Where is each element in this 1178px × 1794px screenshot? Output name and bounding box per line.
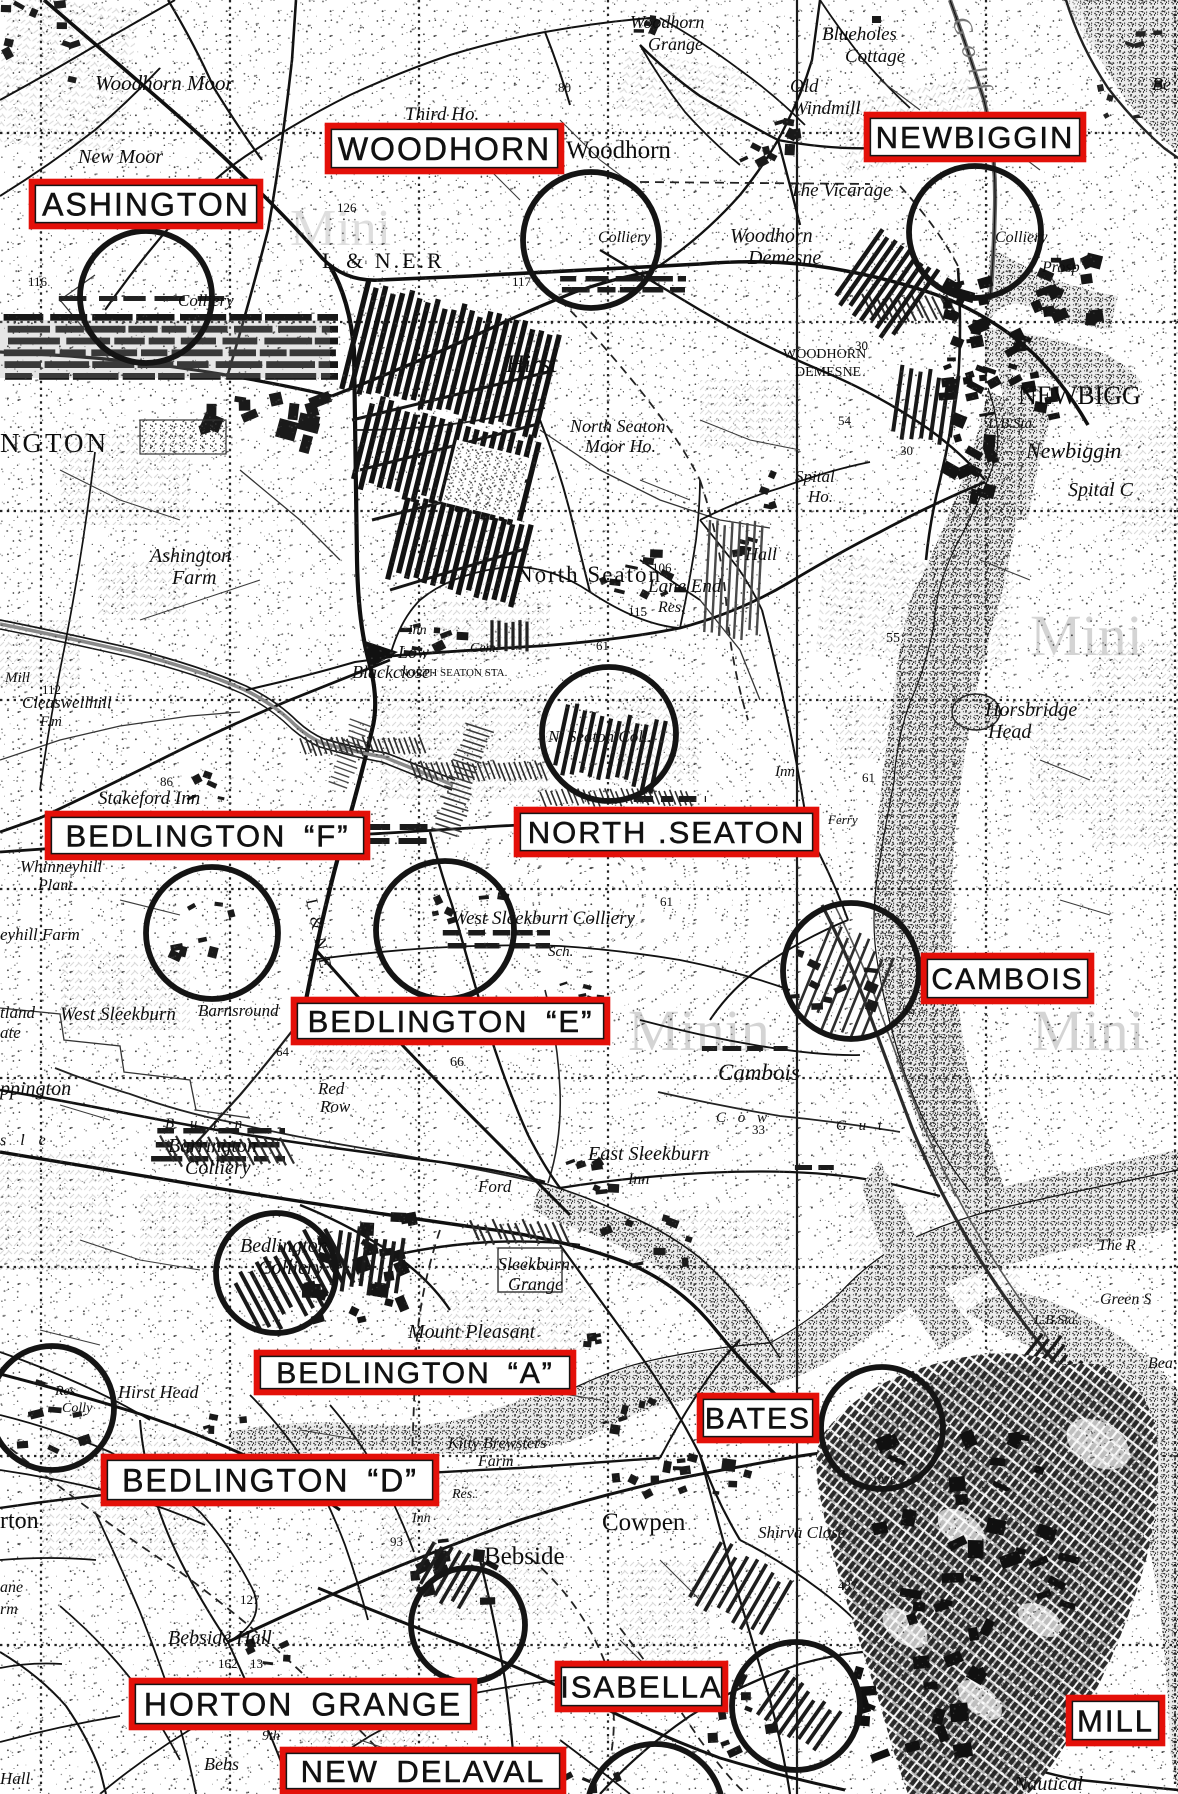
svg-text:HORTON GRANGE: HORTON GRANGE — [144, 1686, 462, 1722]
svg-text:Bebs: Bebs — [204, 1754, 239, 1774]
svg-text:Res.: Res. — [54, 1384, 79, 1399]
svg-text:Ferry: Ferry — [827, 812, 858, 827]
svg-text:Ashington: Ashington — [148, 545, 231, 567]
svg-text:Head: Head — [987, 721, 1032, 743]
svg-text:55: 55 — [886, 631, 900, 646]
svg-text:30: 30 — [855, 338, 868, 353]
svg-text:Colly: Colly — [62, 1401, 93, 1416]
svg-text:Cleaswellhill: Cleaswellhill — [22, 693, 112, 712]
svg-text:Cambois: Cambois — [718, 1060, 800, 1085]
svg-text:Bedlington: Bedlington — [240, 1235, 328, 1257]
svg-text:Old: Old — [790, 76, 819, 97]
svg-text:North Seaton: North Seaton — [516, 562, 662, 587]
svg-text:BEDLINGTON “A”: BEDLINGTON “A” — [276, 1357, 553, 1390]
svg-text:NEW DELAVAL: NEW DELAVAL — [301, 1754, 546, 1789]
svg-text:13: 13 — [250, 1656, 263, 1671]
svg-text:The R: The R — [1098, 1237, 1136, 1254]
svg-text:Woodhorn: Woodhorn — [630, 12, 704, 32]
svg-text:Bebside Hall: Bebside Hall — [168, 1627, 272, 1649]
svg-text:Cem.: Cem. — [470, 641, 499, 656]
svg-text:ane: ane — [0, 1579, 23, 1596]
svg-text:Woodhorn: Woodhorn — [566, 137, 671, 164]
svg-text:BEDLINGTON “F”: BEDLINGTON “F” — [65, 819, 349, 854]
svg-text:61: 61 — [862, 770, 875, 785]
svg-text:Sleekburn: Sleekburn — [498, 1254, 570, 1274]
svg-text:61: 61 — [660, 894, 673, 909]
svg-text:93: 93 — [390, 1534, 403, 1549]
svg-text:tland: tland — [0, 1003, 35, 1022]
svg-text:Cottage: Cottage — [845, 46, 905, 67]
svg-text:Farm: Farm — [477, 1453, 514, 1470]
svg-text:Windmill: Windmill — [792, 98, 861, 119]
svg-text:BEDLINGTON “E”: BEDLINGTON “E” — [308, 1004, 594, 1039]
svg-text:F.m: F.m — [39, 714, 62, 730]
svg-text:Mill: Mill — [4, 670, 30, 686]
svg-text:Grange: Grange — [508, 1274, 563, 1294]
svg-text:33: 33 — [752, 1122, 765, 1137]
svg-text:rm: rm — [0, 1601, 18, 1618]
svg-text:64: 64 — [276, 1044, 290, 1059]
svg-text:NEWBIGGIN: NEWBIGGIN — [876, 120, 1075, 155]
svg-text:Low: Low — [397, 642, 429, 662]
svg-text:Colliery: Colliery — [185, 1157, 251, 1179]
svg-text:Mount Pleasant: Mount Pleasant — [407, 1321, 536, 1343]
svg-text:Prosp: Prosp — [1041, 259, 1080, 276]
svg-text:Demesne: Demesne — [747, 247, 821, 269]
svg-text:BEDLINGTON “D”: BEDLINGTON “D” — [122, 1462, 418, 1498]
svg-text:DEMESNE: DEMESNE — [795, 365, 861, 380]
svg-text:437: 437 — [838, 1578, 858, 1593]
svg-text:Barrington: Barrington — [168, 1135, 257, 1157]
svg-text:Inn: Inn — [407, 623, 427, 638]
svg-text:East Sleekburn: East Sleekburn — [587, 1143, 709, 1165]
svg-text:Row: Row — [319, 1097, 351, 1116]
svg-text:Farm: Farm — [171, 567, 216, 589]
svg-text:86: 86 — [160, 774, 174, 789]
svg-text:Colliery: Colliery — [258, 1257, 324, 1279]
svg-text:s l e: s l e — [0, 1132, 51, 1149]
svg-text:WOODHORN: WOODHORN — [338, 131, 551, 167]
svg-text:Barnsround: Barnsround — [198, 1001, 279, 1020]
svg-text:Res.: Res. — [657, 599, 685, 616]
svg-text:Hall: Hall — [744, 544, 777, 564]
svg-text:West Sleekburn Colliery: West Sleekburn Colliery — [452, 908, 635, 929]
svg-text:Newbiggin: Newbiggin — [1025, 438, 1121, 463]
svg-text:Kitty Brewsters: Kitty Brewsters — [447, 1435, 547, 1452]
svg-text:Nautical: Nautical — [1013, 1773, 1083, 1794]
svg-text:Spital C: Spital C — [1068, 479, 1134, 501]
svg-text:Ho.: Ho. — [807, 487, 833, 506]
svg-text:Res.: Res. — [451, 1487, 476, 1502]
svg-text:L.B.Sta.: L.B.Sta. — [987, 416, 1036, 432]
svg-text:Woodhorn Moor: Woodhorn Moor — [95, 71, 234, 95]
svg-text:L.B.Sta.: L.B.Sta. — [1033, 1313, 1079, 1328]
svg-text:126: 126 — [337, 200, 357, 215]
svg-text:ISABELLA: ISABELLA — [560, 1670, 722, 1705]
svg-text:Hirst: Hirst — [505, 351, 558, 378]
svg-text:Grange: Grange — [648, 34, 703, 54]
svg-text:Third Ho.: Third Ho. — [405, 104, 479, 125]
svg-text:Colliery: Colliery — [598, 229, 651, 246]
svg-text:BATES: BATES — [705, 1403, 811, 1436]
svg-text:61: 61 — [596, 638, 609, 653]
svg-text:127: 127 — [240, 1592, 260, 1607]
svg-text:112: 112 — [42, 682, 61, 697]
svg-text:Colliery: Colliery — [995, 229, 1048, 246]
svg-text:Green S: Green S — [1100, 1291, 1151, 1308]
svg-text:NORTH .SEATON: NORTH .SEATON — [528, 815, 805, 850]
svg-text:Bebside: Bebside — [484, 1543, 565, 1570]
svg-text:Moor Ho.: Moor Ho. — [584, 436, 656, 456]
svg-text:rton: rton — [0, 1508, 39, 1534]
svg-text:Inn: Inn — [627, 1171, 649, 1188]
svg-text:Stakeford Inn: Stakeford Inn — [98, 788, 200, 809]
svg-text:Plant.: Plant. — [37, 877, 77, 894]
svg-text:Inn: Inn — [411, 1511, 431, 1526]
svg-text:Be: Be — [1152, 74, 1171, 94]
svg-text:New Moor: New Moor — [77, 146, 163, 168]
svg-text:NORTH SEATON STA.: NORTH SEATON STA. — [400, 667, 508, 679]
svg-text:WOODHORN: WOODHORN — [783, 347, 866, 362]
svg-text:ASHINGTON: ASHINGTON — [42, 186, 250, 222]
svg-text:66: 66 — [450, 1055, 464, 1070]
svg-text:Shirva Close: Shirva Close — [758, 1523, 846, 1542]
svg-text:54: 54 — [838, 413, 852, 428]
svg-text:Horsbridge: Horsbridge — [984, 699, 1077, 721]
svg-text:80: 80 — [558, 80, 571, 95]
svg-text:eyhill Farm: eyhill Farm — [0, 925, 80, 944]
svg-text:9th: 9th — [262, 1729, 280, 1744]
svg-text:North Seaton: North Seaton — [569, 416, 666, 436]
svg-text:Hirst Head: Hirst Head — [117, 1382, 199, 1402]
svg-text:Bea: Bea — [1148, 1355, 1173, 1372]
svg-text:116: 116 — [28, 274, 48, 289]
svg-text:30: 30 — [900, 443, 913, 458]
svg-text:B u r n: B u r n — [165, 1116, 248, 1132]
svg-text:Ford: Ford — [477, 1177, 512, 1196]
svg-text:Lane End: Lane End — [647, 576, 722, 597]
svg-text:CAMBOIS: CAMBOIS — [931, 963, 1083, 996]
svg-text:N. Seaton Coll.: N. Seaton Coll. — [547, 727, 652, 746]
svg-text:Woodhorn: Woodhorn — [730, 225, 813, 247]
svg-text:117: 117 — [512, 274, 532, 289]
svg-text:The Vicarage: The Vicarage — [790, 180, 892, 201]
svg-text:106: 106 — [652, 560, 672, 575]
svg-text:MILL: MILL — [1077, 1704, 1154, 1739]
svg-text:ppington: ppington — [0, 1078, 71, 1100]
svg-text:162: 162 — [218, 1656, 238, 1671]
svg-text:Blueholes: Blueholes — [822, 24, 897, 45]
svg-text:NEWBIGG: NEWBIGG — [1018, 381, 1141, 410]
svg-text:1078: 1078 — [872, 1473, 896, 1487]
svg-text:55: 55 — [902, 1002, 915, 1017]
svg-text:Hall: Hall — [0, 1769, 31, 1788]
svg-text:Sch.: Sch. — [548, 944, 573, 960]
svg-text:Spital: Spital — [795, 467, 835, 486]
svg-text:Inn: Inn — [774, 764, 795, 780]
svg-text:L & N.E.R: L & N.E.R — [322, 248, 445, 273]
svg-text:West Sleekburn: West Sleekburn — [60, 1004, 176, 1025]
svg-text:G u t: G u t — [836, 1118, 886, 1134]
svg-text:115: 115 — [628, 604, 647, 619]
svg-text:Cowpen: Cowpen — [602, 1509, 686, 1536]
svg-text:ate: ate — [0, 1023, 21, 1042]
svg-text:Colliery: Colliery — [178, 291, 234, 310]
svg-text:Red: Red — [317, 1079, 345, 1098]
